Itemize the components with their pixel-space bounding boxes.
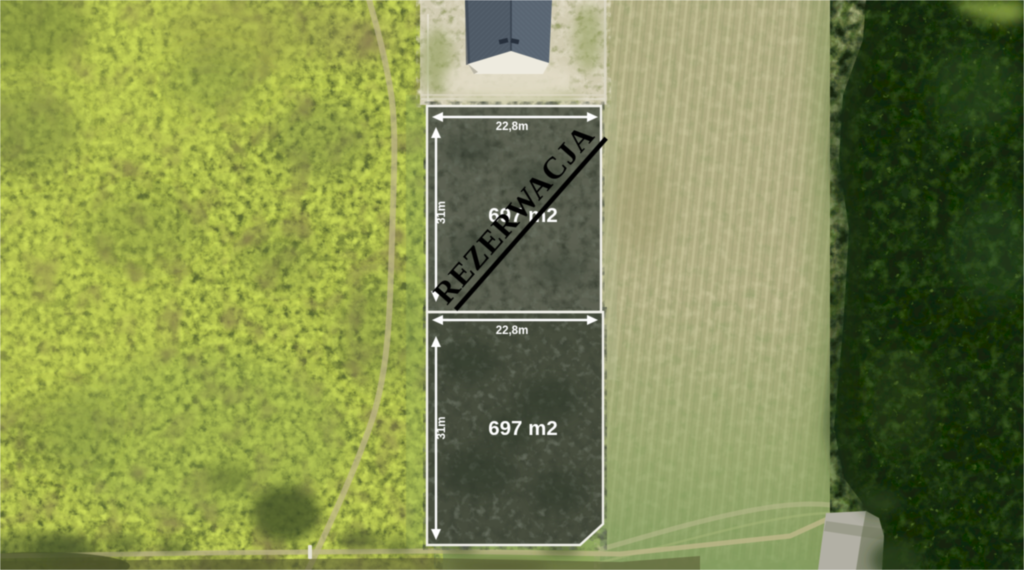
svg-text:31m: 31m — [436, 201, 448, 224]
svg-text:31m: 31m — [436, 416, 448, 439]
svg-text:22,8m: 22,8m — [496, 325, 529, 337]
svg-text:697 m2: 697 m2 — [488, 417, 558, 440]
svg-text:22,8m: 22,8m — [496, 121, 529, 133]
